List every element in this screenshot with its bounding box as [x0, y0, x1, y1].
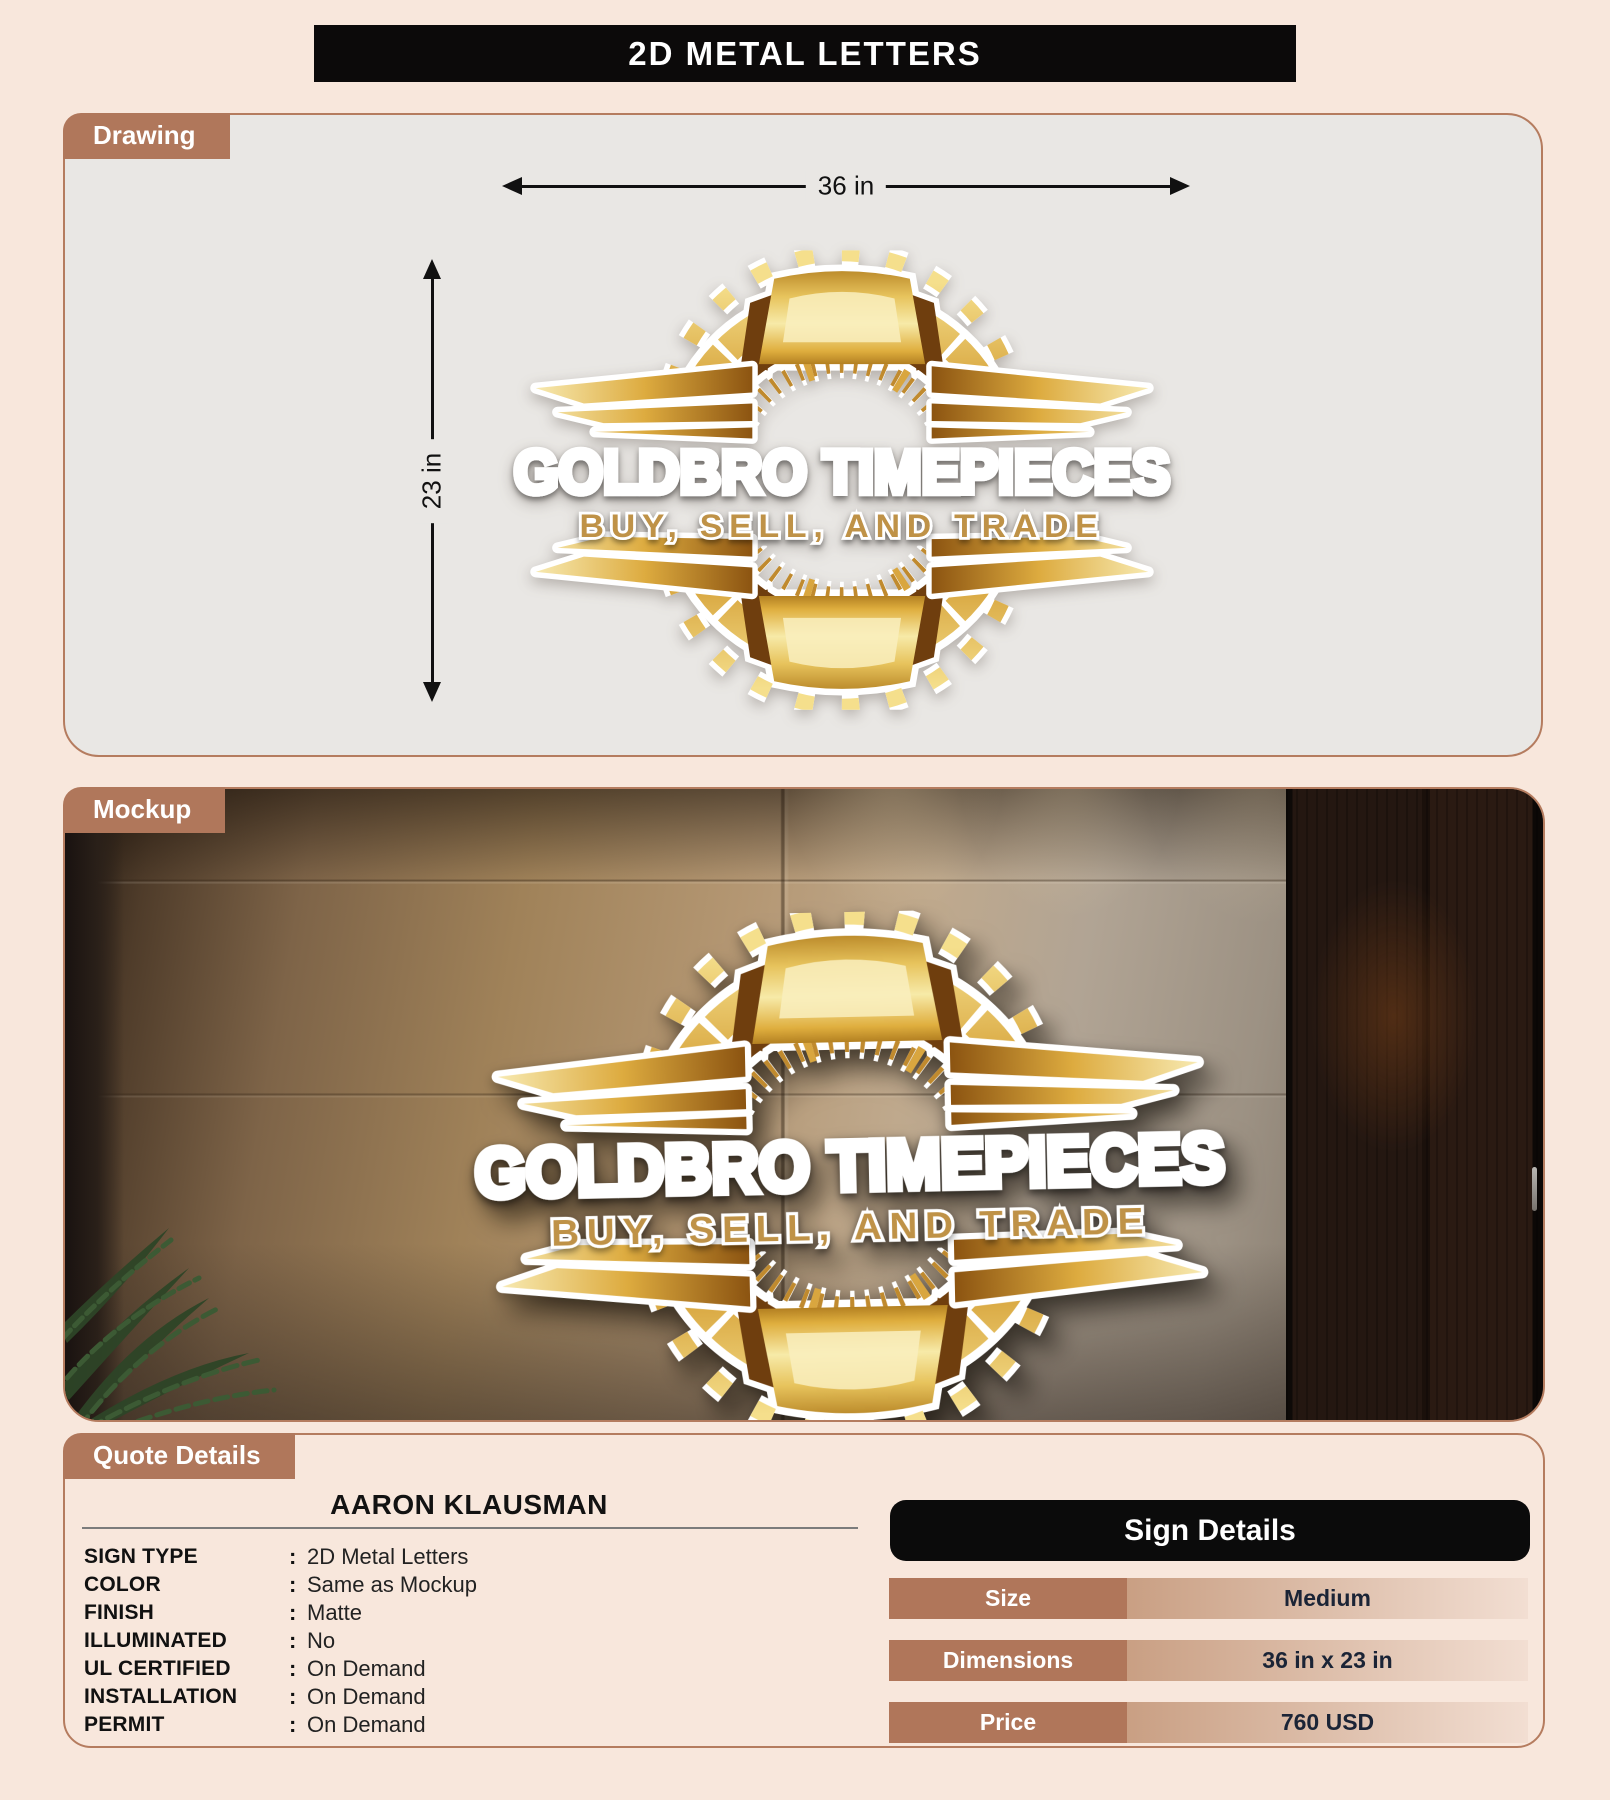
divider [82, 1527, 858, 1529]
width-dimension-label: 36 in [806, 171, 886, 202]
quote-row-label: ILLUMINATED [84, 1629, 289, 1653]
quote-row-label: FINISH [84, 1601, 289, 1625]
drawing-section-label: Drawing [93, 120, 196, 150]
drawing-section-tag: Drawing [63, 113, 230, 159]
height-dimension-label: 23 in [415, 438, 450, 522]
mockup-section-tag: Mockup [63, 787, 225, 833]
colon-separator: : [289, 1600, 307, 1626]
quote-row-value: No [307, 1628, 784, 1654]
colon-separator: : [289, 1572, 307, 1598]
mockup-section-label: Mockup [93, 794, 191, 824]
colon-separator: : [289, 1684, 307, 1710]
quote-row-label: COLOR [84, 1573, 289, 1597]
sign-details-title: Sign Details [1124, 1514, 1296, 1548]
plant-leaves [63, 1128, 379, 1422]
quote-row-label: PERMIT [84, 1713, 289, 1737]
colon-separator: : [289, 1712, 307, 1738]
wood-door [1286, 789, 1543, 1420]
quote-row-value: On Demand [307, 1684, 784, 1710]
quote-row-ul-certified: UL CERTIFIED : On Demand [84, 1655, 784, 1683]
sign-details-value: 36 in x 23 in [1127, 1640, 1528, 1681]
quote-row-value: 2D Metal Letters [307, 1544, 784, 1570]
quote-rows: SIGN TYPE : 2D Metal Letters COLOR : Sam… [84, 1543, 784, 1739]
colon-separator: : [289, 1628, 307, 1654]
quote-sheet: 2D METAL LETTERS Drawing 36 in 23 in [0, 0, 1610, 1800]
sign-logo-drawing [492, 250, 1192, 710]
colon-separator: : [289, 1656, 307, 1682]
sign-details-value: Medium [1127, 1578, 1528, 1619]
sign-details-label: Price [889, 1702, 1127, 1743]
colon-separator: : [289, 1544, 307, 1570]
quote-row-value: On Demand [307, 1656, 784, 1682]
page-title: 2D METAL LETTERS [628, 35, 981, 73]
arrow-down-icon [423, 682, 441, 702]
sign-details-label: Dimensions [889, 1640, 1127, 1681]
mockup-panel [63, 787, 1545, 1422]
quote-row-label: UL CERTIFIED [84, 1657, 289, 1681]
quote-row-value: Matte [307, 1600, 784, 1626]
sign-details-header: Sign Details [890, 1500, 1530, 1561]
width-dimension: 36 in [502, 172, 1190, 200]
page-title-banner: 2D METAL LETTERS [314, 25, 1296, 82]
drawing-panel: 36 in 23 in [63, 113, 1543, 757]
door-handle [1532, 1167, 1537, 1211]
quote-row-value: On Demand [307, 1712, 784, 1738]
quote-row-finish: FINISH : Matte [84, 1599, 784, 1627]
quote-section-tag: Quote Details [63, 1433, 295, 1479]
quote-section-label: Quote Details [93, 1440, 261, 1470]
customer-name: AARON KLAUSMAN [80, 1489, 858, 1521]
sign-details-row-size: Size Medium [889, 1578, 1528, 1619]
sign-logo-mockup [445, 904, 1256, 1422]
arrow-right-icon [1170, 177, 1190, 195]
sign-details-row-dimensions: Dimensions 36 in x 23 in [889, 1640, 1528, 1681]
quote-row-color: COLOR : Same as Mockup [84, 1571, 784, 1599]
quote-row-label: INSTALLATION [84, 1685, 289, 1709]
quote-row-sign-type: SIGN TYPE : 2D Metal Letters [84, 1543, 784, 1571]
quote-row-permit: PERMIT : On Demand [84, 1711, 784, 1739]
sign-details-value: 760 USD [1127, 1702, 1528, 1743]
sign-details-row-price: Price 760 USD [889, 1702, 1528, 1743]
quote-row-label: SIGN TYPE [84, 1545, 289, 1569]
quote-row-installation: INSTALLATION : On Demand [84, 1683, 784, 1711]
quote-row-value: Same as Mockup [307, 1572, 784, 1598]
height-dimension: 23 in [418, 259, 446, 702]
sign-details-label: Size [889, 1578, 1127, 1619]
quote-row-illuminated: ILLUMINATED : No [84, 1627, 784, 1655]
